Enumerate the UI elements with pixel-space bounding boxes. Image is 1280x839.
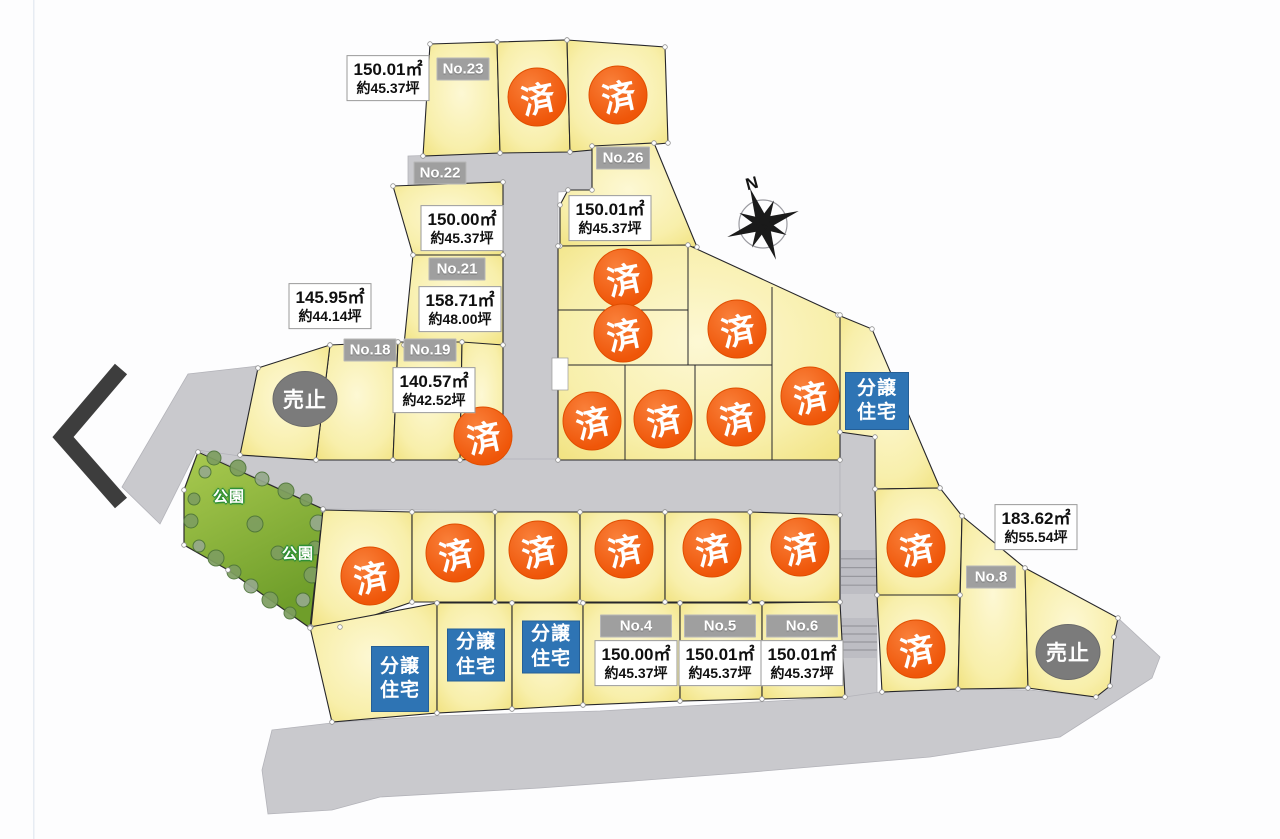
park-bush bbox=[207, 451, 221, 465]
sold-status-text: 済 bbox=[433, 526, 476, 581]
survey-point-dot bbox=[1026, 686, 1031, 691]
road-steps bbox=[841, 550, 877, 594]
built-house-text-line: 住宅 bbox=[380, 679, 420, 703]
survey-point-dot bbox=[838, 430, 843, 435]
survey-point-dot bbox=[435, 601, 440, 606]
built-house-text: 分譲住宅 bbox=[857, 377, 897, 426]
survey-point-dot bbox=[568, 150, 573, 155]
sales-stopped-marker: 売止 bbox=[1036, 624, 1101, 680]
survey-point-dot bbox=[838, 313, 843, 318]
survey-point-dot bbox=[1023, 566, 1028, 571]
built-house-text-line: 住宅 bbox=[531, 647, 571, 671]
park-bush bbox=[230, 460, 246, 476]
park-bush bbox=[244, 579, 258, 593]
lot-number-tag: No.18 bbox=[344, 339, 397, 362]
sales-stopped-marker: 売止 bbox=[273, 371, 338, 427]
park-bush bbox=[278, 483, 294, 499]
park-bush bbox=[184, 514, 198, 528]
park-bush bbox=[193, 540, 205, 552]
survey-point-dot bbox=[556, 244, 561, 249]
survey-point-dot bbox=[391, 458, 396, 463]
lot-area-tsubo: 約42.52坪 bbox=[400, 392, 469, 410]
built-house-text-line: 分譲 bbox=[857, 377, 897, 401]
sold-status-marker: 済 bbox=[508, 68, 567, 127]
built-house-text: 分譲住宅 bbox=[531, 623, 571, 672]
survey-point-dot bbox=[748, 510, 753, 515]
survey-point-dot bbox=[314, 458, 319, 463]
survey-point-dot bbox=[410, 510, 415, 515]
survey-point-dot bbox=[501, 343, 506, 348]
survey-point-dot bbox=[578, 510, 583, 515]
survey-point-dot bbox=[256, 366, 261, 371]
built-house-label: 分譲住宅 bbox=[522, 621, 580, 674]
survey-point-dot bbox=[460, 340, 465, 345]
sold-status-text: 済 bbox=[690, 521, 733, 576]
survey-point-dot bbox=[495, 40, 500, 45]
survey-point-dot bbox=[875, 593, 880, 598]
survey-point-dot bbox=[410, 600, 415, 605]
sales-stopped-text: 売止 bbox=[283, 384, 327, 414]
survey-point-dot bbox=[590, 188, 595, 193]
survey-point-dot bbox=[838, 458, 843, 463]
lot-number-tag: No.23 bbox=[437, 58, 490, 81]
lot-area-tsubo: 約45.37坪 bbox=[428, 230, 497, 248]
park-bush bbox=[199, 466, 211, 478]
survey-point-dot bbox=[843, 695, 848, 700]
sold-status-text: 済 bbox=[570, 394, 613, 449]
lot-number-tag: No.5 bbox=[684, 615, 756, 638]
lot-area-sqm: 150.01㎡ bbox=[686, 644, 755, 665]
park-name-label: 公園 bbox=[282, 543, 314, 564]
park-bush bbox=[296, 593, 310, 607]
lot-area-label: 150.01㎡約45.37坪 bbox=[761, 640, 844, 686]
sold-status-text: 済 bbox=[601, 306, 644, 361]
sold-status-text: 済 bbox=[714, 390, 757, 445]
sold-status-text: 済 bbox=[596, 68, 639, 123]
lot-area-sqm: 183.62㎡ bbox=[1002, 508, 1071, 529]
survey-point-dot bbox=[238, 453, 243, 458]
survey-point-dot bbox=[590, 144, 595, 149]
park-name-label: 公園 bbox=[213, 486, 245, 507]
survey-point-dot bbox=[956, 687, 961, 692]
survey-point-dot bbox=[196, 450, 201, 455]
built-house-label: 分譲住宅 bbox=[447, 629, 505, 682]
survey-point-dot bbox=[880, 690, 885, 695]
survey-point-dot bbox=[873, 435, 878, 440]
lot-area-sqm: 150.01㎡ bbox=[354, 59, 423, 80]
survey-point-dot bbox=[1108, 684, 1113, 689]
survey-point-dot bbox=[666, 141, 671, 146]
park-bush bbox=[300, 494, 312, 506]
sold-status-text: 済 bbox=[601, 251, 644, 306]
sold-status-marker: 済 bbox=[589, 66, 648, 125]
sold-status-text: 済 bbox=[461, 409, 504, 464]
lot-area-sqm: 150.00㎡ bbox=[428, 209, 497, 230]
survey-point-dot bbox=[686, 243, 691, 248]
lot-area-label: 183.62㎡約55.54坪 bbox=[995, 504, 1078, 550]
survey-point-dot bbox=[330, 720, 335, 725]
lot-number-tag: No.21 bbox=[429, 258, 486, 281]
survey-point-dot bbox=[695, 245, 700, 250]
road-steps bbox=[841, 618, 877, 658]
survey-point-dot bbox=[182, 543, 187, 548]
page-edge-line bbox=[33, 0, 35, 839]
survey-point-dot bbox=[510, 601, 515, 606]
built-house-text-line: 分譲 bbox=[380, 655, 420, 679]
lot-area-sqm: 145.95㎡ bbox=[296, 287, 365, 308]
survey-point-dot bbox=[565, 38, 570, 43]
lot-number-tag: No.22 bbox=[414, 162, 467, 185]
park-bush bbox=[208, 550, 224, 566]
survey-point-dot bbox=[1116, 616, 1121, 621]
built-house-text: 分譲住宅 bbox=[456, 631, 496, 680]
survey-point-dot bbox=[498, 151, 503, 156]
compass-rose-icon bbox=[727, 188, 798, 259]
survey-point-dot bbox=[566, 188, 571, 193]
survey-point-dot bbox=[501, 253, 506, 258]
survey-point-dot bbox=[1094, 695, 1099, 700]
survey-point-dot bbox=[678, 699, 683, 704]
sold-status-marker: 済 bbox=[708, 300, 767, 359]
sold-status-text: 済 bbox=[641, 392, 684, 447]
lot-number-tag: No.19 bbox=[404, 339, 457, 362]
survey-point-dot bbox=[321, 507, 326, 512]
survey-point-dot bbox=[1112, 635, 1117, 640]
survey-point-dot bbox=[421, 154, 426, 159]
survey-point-dot bbox=[182, 488, 187, 493]
built-house-text-line: 分譲 bbox=[531, 623, 571, 647]
lot-number-tag: No.26 bbox=[596, 147, 650, 170]
survey-point-dot bbox=[493, 600, 498, 605]
sold-status-text: 済 bbox=[894, 521, 937, 576]
lot-area-label: 150.01㎡約45.37坪 bbox=[347, 55, 430, 101]
lot-area-tsubo: 約48.00坪 bbox=[426, 311, 495, 329]
survey-point-dot bbox=[870, 327, 875, 332]
sold-status-marker: 済 bbox=[887, 620, 946, 679]
sold-status-marker: 済 bbox=[341, 547, 400, 606]
lot-area-sqm: 150.01㎡ bbox=[576, 199, 645, 220]
sold-status-marker: 済 bbox=[683, 519, 742, 578]
sold-status-text: 済 bbox=[516, 523, 559, 578]
park-bush bbox=[247, 516, 263, 532]
lot-area-label: 158.71㎡約48.00坪 bbox=[419, 286, 502, 332]
survey-point-dot bbox=[458, 458, 463, 463]
lot-number-tag: No.8 bbox=[966, 566, 1016, 589]
lot-area-label: 150.00㎡約45.37坪 bbox=[421, 205, 504, 251]
park-bush bbox=[188, 493, 200, 505]
sold-status-text: 済 bbox=[894, 622, 937, 677]
lot-area-label: 150.00㎡約45.37坪 bbox=[595, 640, 678, 686]
survey-point-dot bbox=[760, 601, 765, 606]
lot-area-sqm: 150.00㎡ bbox=[602, 644, 671, 665]
survey-point-dot bbox=[328, 343, 333, 348]
lot-area-label: 140.57㎡約42.52坪 bbox=[393, 367, 476, 413]
sold-status-text: 済 bbox=[602, 522, 645, 577]
survey-point-dot bbox=[556, 458, 561, 463]
sold-status-marker: 済 bbox=[771, 518, 830, 577]
sold-status-marker: 済 bbox=[509, 521, 568, 580]
survey-point-dot bbox=[838, 513, 843, 518]
survey-point-dot bbox=[663, 510, 668, 515]
sold-status-marker: 済 bbox=[887, 519, 946, 578]
park-bush bbox=[284, 607, 296, 619]
lot-area-label: 150.01㎡約45.37坪 bbox=[679, 640, 762, 686]
sold-status-marker: 済 bbox=[454, 407, 513, 466]
lot-area-sqm: 140.57㎡ bbox=[400, 371, 469, 392]
sold-status-marker: 済 bbox=[594, 249, 653, 308]
built-house-label: 分譲住宅 bbox=[845, 372, 909, 430]
lot-area-label: 150.01㎡約45.37坪 bbox=[569, 195, 652, 241]
survey-point-dot bbox=[678, 601, 683, 606]
lot-area-sqm: 158.71㎡ bbox=[426, 290, 495, 311]
survey-point-dot bbox=[338, 625, 343, 630]
lot-area-tsubo: 約45.37坪 bbox=[686, 665, 755, 683]
survey-point-dot bbox=[663, 45, 668, 50]
survey-point-dot bbox=[652, 141, 657, 146]
survey-point-dot bbox=[435, 711, 440, 716]
map-arrow-chevron bbox=[63, 369, 121, 503]
lot-number-tag: No.6 bbox=[766, 615, 838, 638]
sold-status-marker: 済 bbox=[634, 390, 693, 449]
built-house-text-line: 住宅 bbox=[456, 655, 496, 679]
lot-area-tsubo: 約44.14坪 bbox=[296, 308, 365, 326]
lot-area-tsubo: 約55.54坪 bbox=[1002, 529, 1071, 547]
survey-point-dot bbox=[391, 184, 396, 189]
lot-number-tag: No.4 bbox=[600, 615, 672, 638]
survey-point-dot bbox=[663, 600, 668, 605]
survey-point-dot bbox=[873, 487, 878, 492]
survey-point-dot bbox=[581, 601, 586, 606]
survey-point-dot bbox=[938, 486, 943, 491]
lot-area-label: 145.95㎡約44.14坪 bbox=[289, 283, 372, 329]
sold-status-text: 済 bbox=[515, 70, 558, 125]
sales-stopped-text: 売止 bbox=[1046, 637, 1090, 667]
sold-status-marker: 済 bbox=[594, 304, 653, 363]
lot-area-tsubo: 約45.37坪 bbox=[576, 220, 645, 238]
built-house-label: 分譲住宅 bbox=[371, 646, 429, 712]
sold-status-text: 済 bbox=[778, 520, 821, 575]
survey-point-dot bbox=[428, 42, 433, 47]
survey-point-dot bbox=[510, 707, 515, 712]
sold-status-marker: 済 bbox=[426, 524, 485, 583]
survey-point-dot bbox=[493, 510, 498, 515]
survey-point-dot bbox=[581, 703, 586, 708]
sold-status-text: 済 bbox=[788, 369, 831, 424]
sold-status-text: 済 bbox=[348, 549, 391, 604]
lot-area-tsubo: 約45.37坪 bbox=[354, 80, 423, 98]
survey-point-dot bbox=[760, 697, 765, 702]
subdivision-site-plan: 済済済済済済済済済済済済済済済済済済売止売止分譲住宅分譲住宅分譲住宅分譲住宅No… bbox=[0, 0, 1280, 839]
lot-area-sqm: 150.01㎡ bbox=[768, 644, 837, 665]
plan-notch bbox=[552, 358, 568, 390]
survey-point-dot bbox=[748, 600, 753, 605]
survey-point-dot bbox=[501, 180, 506, 185]
sold-status-marker: 済 bbox=[707, 388, 766, 447]
built-house-text-line: 分譲 bbox=[456, 631, 496, 655]
survey-point-dot bbox=[308, 626, 313, 631]
lot-area-tsubo: 約45.37坪 bbox=[602, 665, 671, 683]
survey-point-dot bbox=[960, 514, 965, 519]
survey-point-dot bbox=[558, 203, 563, 208]
built-house-text: 分譲住宅 bbox=[380, 655, 420, 704]
park-bush bbox=[262, 592, 278, 608]
survey-point-dot bbox=[838, 600, 843, 605]
survey-point-dot bbox=[226, 568, 231, 573]
sold-status-marker: 済 bbox=[563, 392, 622, 451]
sold-status-marker: 済 bbox=[781, 367, 840, 426]
built-house-text-line: 住宅 bbox=[857, 401, 897, 425]
lot-area-tsubo: 約45.37坪 bbox=[768, 665, 837, 683]
sold-status-text: 済 bbox=[715, 302, 758, 357]
sold-status-marker: 済 bbox=[595, 520, 654, 579]
park-bush bbox=[255, 472, 269, 486]
survey-point-dot bbox=[411, 253, 416, 258]
survey-point-dot bbox=[958, 593, 963, 598]
